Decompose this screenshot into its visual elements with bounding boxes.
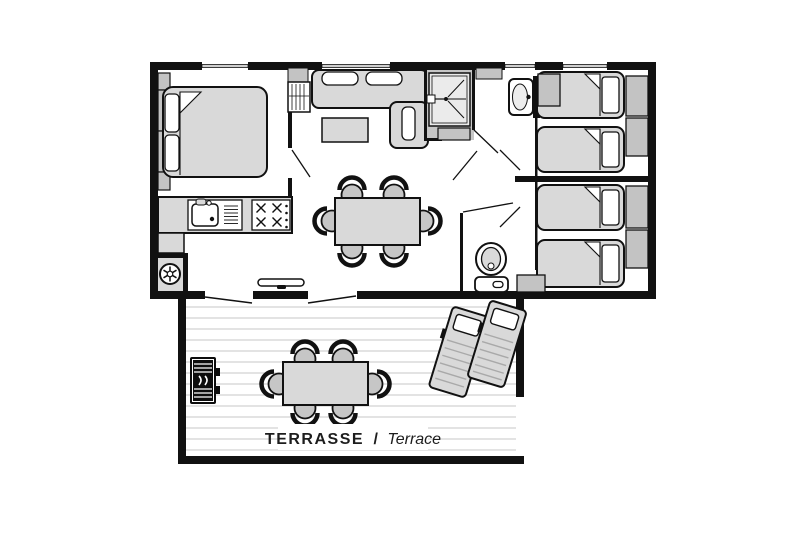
toilet-icon [475, 243, 508, 292]
window-icon [563, 62, 607, 70]
floor-plan-drawing: TERRASSE / Terrace [0, 0, 800, 533]
single-bed-icon [537, 240, 624, 287]
terrace-wall-left [178, 293, 186, 464]
terrace: TERRASSE / Terrace [178, 293, 530, 464]
coffee-table-icon [322, 118, 368, 142]
window-icon [202, 62, 248, 70]
kitchen-sink-icon [188, 199, 242, 230]
shower-head-icon [427, 95, 435, 103]
partition-wall [515, 176, 648, 182]
pillow-icon [602, 190, 619, 225]
single-bed-icon [537, 185, 624, 230]
wall-left [150, 62, 158, 299]
stove-icon [252, 200, 290, 230]
washbasin-icon [509, 79, 533, 115]
faucet-icon [196, 199, 206, 205]
window-icon [322, 62, 390, 70]
single-bed-icon [537, 127, 624, 172]
terrace-wall-bottom [178, 456, 524, 464]
shower-step [438, 128, 470, 140]
wc-wall [460, 213, 463, 291]
wall-right [648, 62, 656, 299]
shelf-unit-icon [288, 82, 310, 112]
cabinet-top [288, 68, 308, 82]
pillow-icon [602, 77, 619, 113]
pillow-icon [165, 135, 179, 171]
double-bed-icon [163, 87, 267, 177]
utility-wall [183, 253, 188, 299]
cabinet [517, 275, 545, 292]
shelf [476, 68, 502, 79]
washing-machine-icon [160, 264, 180, 284]
pillow-icon [602, 245, 619, 282]
terrace-label: TERRASSE / Terrace [265, 431, 441, 448]
window-icon [505, 62, 535, 70]
pillow-icon [165, 94, 179, 132]
pillow-icon [602, 132, 619, 167]
dining-table-icon [335, 198, 420, 245]
main-unit [150, 62, 656, 303]
bbq-grill-icon [190, 357, 220, 404]
terrace-table [283, 362, 368, 405]
floor-plan: TERRASSE / Terrace [0, 0, 800, 533]
shower-icon [427, 73, 470, 126]
counter-return [158, 233, 184, 253]
